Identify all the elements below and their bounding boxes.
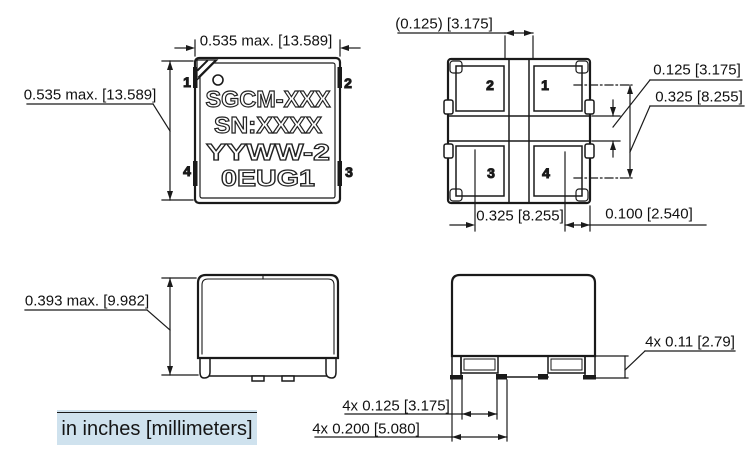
side-view-a-base — [200, 358, 336, 381]
dim-label-pad-pitch-v: 0.325 [8.255] — [655, 90, 743, 105]
bottom-view-cross-gap — [448, 59, 590, 203]
pin-label-1: 1 — [183, 74, 191, 90]
marking-line-3: YYWW-2 — [206, 139, 330, 165]
dim-label-terminal-height: 4x 0.11 [2.79] — [645, 335, 735, 350]
dim-label-pad-pitch-h: 0.325 [8.255] — [476, 209, 564, 224]
dim-label-pad-to-edge: 0.100 [2.540] — [605, 207, 693, 222]
pin1-marker-dot — [213, 75, 223, 85]
pad-label-1: 1 — [541, 77, 549, 93]
pad-label-3: 3 — [487, 165, 495, 181]
units-note-rule — [57, 412, 257, 413]
pad-label-4: 4 — [542, 165, 550, 181]
side-view-b-terminals — [450, 356, 596, 380]
bottom-view-body: 1 2 3 4 — [444, 59, 594, 203]
dim-label-side-height: 0.393 max. [9.982] — [25, 294, 149, 309]
units-note-box: in inches [millimeters] — [57, 410, 257, 445]
dim-label-pad-gap: 0.125 [3.175] — [653, 63, 741, 78]
marking-line-4: 0EUG1 — [221, 165, 315, 191]
dim-label-center-gap: (0.125) [3.175] — [395, 17, 493, 32]
side-view-a-body — [198, 275, 338, 381]
top-view-body: SGCM-XXX SN:XXXX YYWW-2 0EUG1 1 2 3 4 — [183, 58, 353, 203]
pin-label-2: 2 — [344, 75, 352, 91]
marking-line-2: SN:XXXX — [214, 112, 323, 138]
bottom-view-corner-tabs — [450, 61, 588, 201]
package-outline-drawing: SGCM-XXX SN:XXXX YYWW-2 0EUG1 1 2 3 4 — [0, 0, 749, 451]
marking-line-1: SGCM-XXX — [206, 86, 332, 112]
pad-label-2: 2 — [486, 77, 494, 93]
drawing-linework: SGCM-XXX SN:XXXX YYWW-2 0EUG1 1 2 3 4 — [0, 0, 749, 451]
side-view-b-body — [450, 275, 596, 380]
package-marking: SGCM-XXX SN:XXXX YYWW-2 0EUG1 — [206, 86, 332, 191]
dim-label-terminal-width: 4x 0.125 [3.175] — [342, 399, 450, 414]
pin-label-4: 4 — [183, 163, 191, 179]
dim-label-top-height: 0.535 max. [13.589] — [24, 88, 157, 103]
dim-label-top-width: 0.535 max. [13.589] — [200, 34, 333, 49]
bottom-view-pad-numbers: 1 2 3 4 — [486, 77, 550, 181]
pin-label-3: 3 — [345, 164, 353, 180]
units-note: in inches [millimeters] — [61, 419, 252, 439]
bottom-view-side-notches — [444, 100, 594, 158]
dim-label-terminal-span: 4x 0.200 [5.080] — [312, 422, 420, 437]
